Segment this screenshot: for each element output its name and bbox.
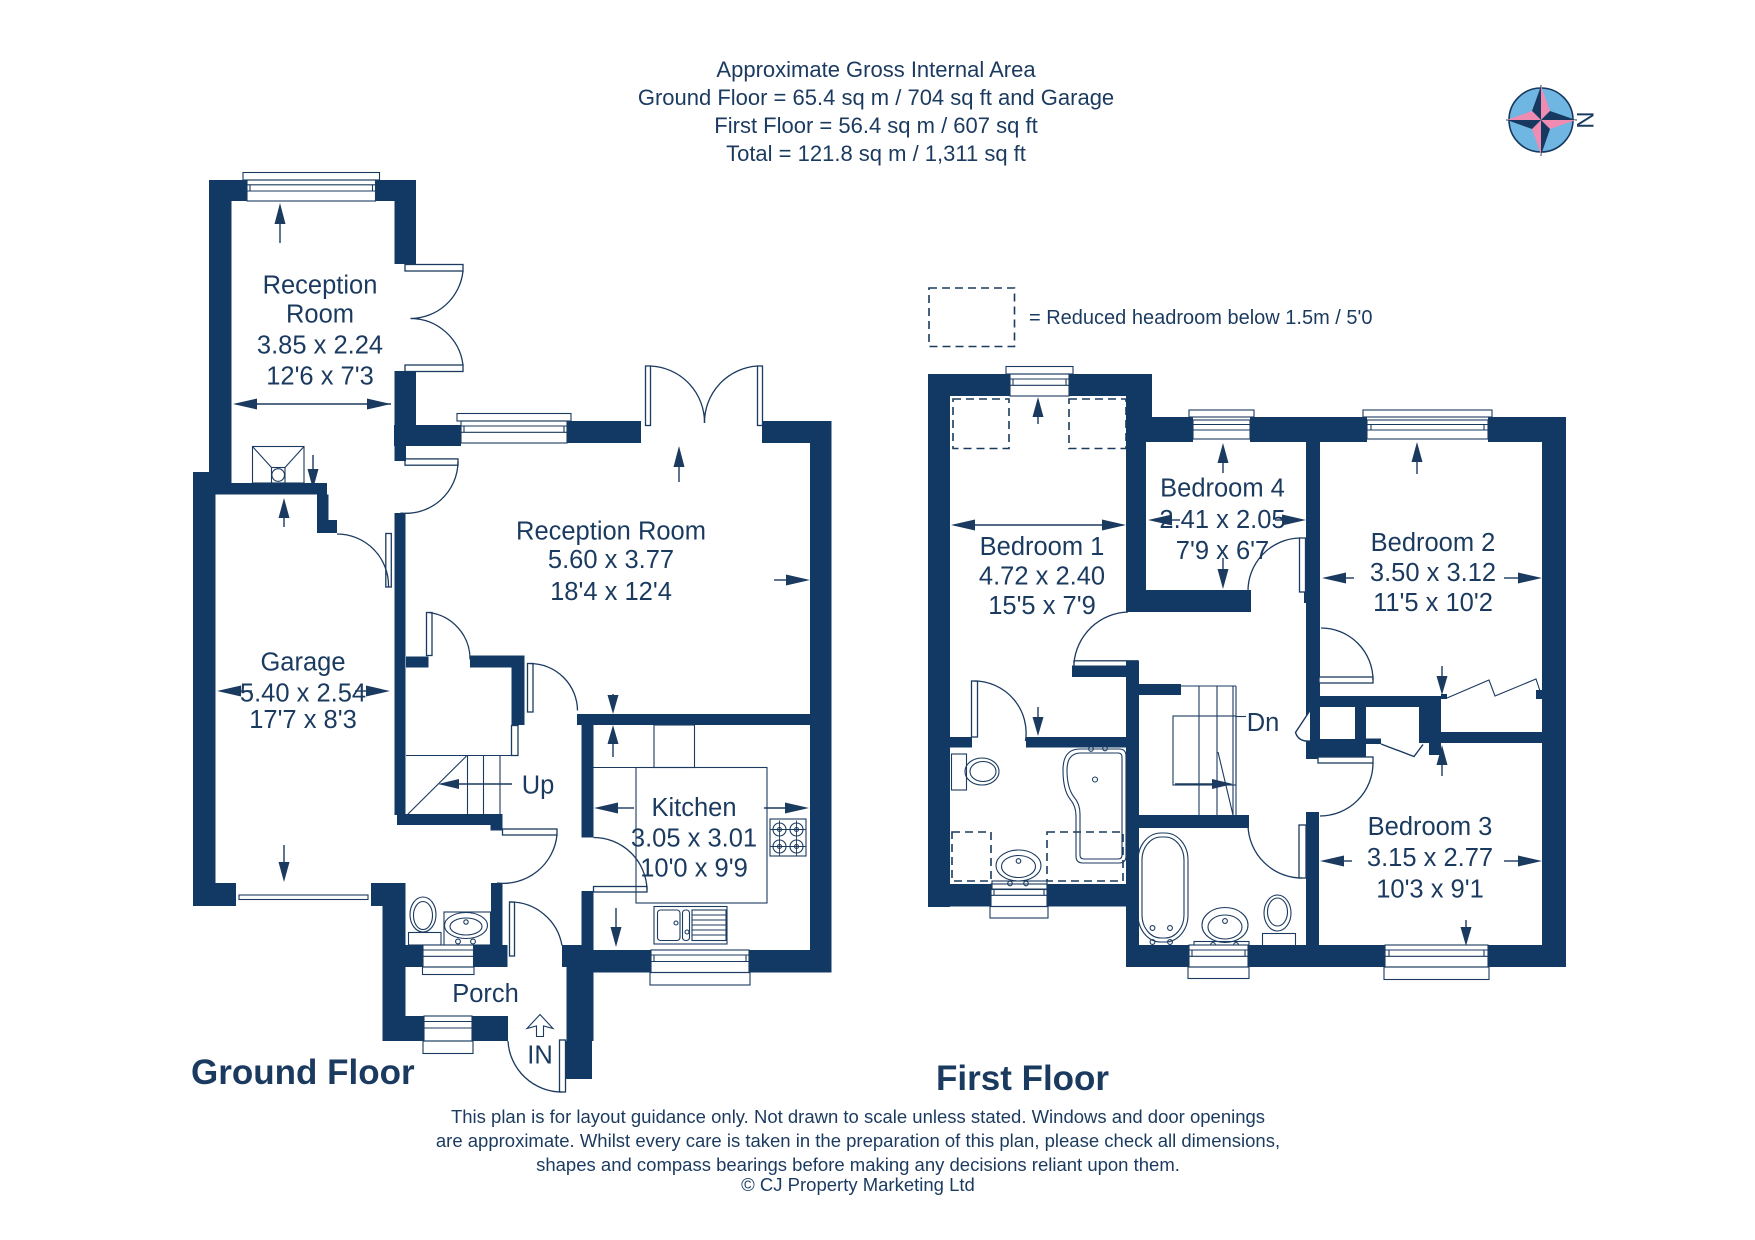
- svg-text:First Floor: First Floor: [936, 1059, 1109, 1098]
- svg-text:Ground Floor = 65.4 sq m / 704: Ground Floor = 65.4 sq m / 704 sq ft and…: [638, 85, 1114, 110]
- svg-text:18'4 x 12'4: 18'4 x 12'4: [550, 578, 672, 606]
- svg-text:11'5 x 10'2: 11'5 x 10'2: [1373, 589, 1493, 617]
- svg-text:3.15 x 2.77: 3.15 x 2.77: [1367, 844, 1493, 872]
- svg-text:© CJ Property Marketing Ltd: © CJ Property Marketing Ltd: [741, 1174, 975, 1195]
- svg-text:4.72 x 2.40: 4.72 x 2.40: [979, 563, 1105, 591]
- svg-text:3.50 x 3.12: 3.50 x 3.12: [1370, 559, 1496, 587]
- svg-text:15'5 x 7'9: 15'5 x 7'9: [988, 592, 1096, 620]
- svg-text:Reception Room: Reception Room: [516, 518, 706, 546]
- svg-text:Total = 121.8 sq m / 1,311 sq: Total = 121.8 sq m / 1,311 sq ft: [726, 141, 1026, 166]
- svg-text:Dn: Dn: [1247, 709, 1280, 737]
- svg-text:5.40 x 2.54: 5.40 x 2.54: [240, 680, 366, 708]
- svg-text:Up: Up: [522, 772, 555, 800]
- svg-text:Room: Room: [286, 301, 354, 329]
- svg-text:Bedroom 1: Bedroom 1: [980, 533, 1105, 561]
- svg-text:Bedroom 4: Bedroom 4: [1160, 475, 1285, 503]
- svg-text:First Floor = 56.4 sq m / 607: First Floor = 56.4 sq m / 607 sq ft: [714, 113, 1037, 138]
- svg-text:Ground Floor: Ground Floor: [191, 1053, 415, 1092]
- svg-text:Reception: Reception: [263, 272, 378, 300]
- svg-text:Bedroom 2: Bedroom 2: [1371, 529, 1496, 557]
- svg-text:Porch: Porch: [452, 980, 519, 1008]
- svg-text:10'3 x 9'1: 10'3 x 9'1: [1376, 876, 1484, 904]
- svg-text:Bedroom 3: Bedroom 3: [1368, 813, 1493, 841]
- svg-text:IN: IN: [527, 1042, 553, 1070]
- svg-text:N: N: [1571, 111, 1598, 128]
- svg-text:12'6 x 7'3: 12'6 x 7'3: [266, 363, 374, 391]
- svg-text:shapes and compass bearings be: shapes and compass bearings before makin…: [536, 1154, 1180, 1175]
- svg-text:17'7 x 8'3: 17'7 x 8'3: [249, 706, 357, 734]
- svg-text:10'0 x 9'9: 10'0 x 9'9: [640, 855, 748, 883]
- svg-text:Garage: Garage: [260, 649, 345, 677]
- svg-text:are approximate. Whilst every: are approximate. Whilst every care is ta…: [436, 1130, 1280, 1151]
- svg-text:This plan is for layout guidan: This plan is for layout guidance only. N…: [451, 1106, 1265, 1127]
- svg-text:3.85 x 2.24: 3.85 x 2.24: [257, 332, 383, 360]
- svg-text:5.60 x 3.77: 5.60 x 3.77: [548, 546, 674, 574]
- svg-text:Approximate Gross Internal Are: Approximate Gross Internal Area: [716, 57, 1036, 82]
- svg-text:Kitchen: Kitchen: [651, 794, 736, 822]
- svg-text:3.05 x 3.01: 3.05 x 3.01: [631, 825, 757, 853]
- svg-text:= Reduced headroom below 1.5m: = Reduced headroom below 1.5m / 5'0: [1029, 307, 1372, 329]
